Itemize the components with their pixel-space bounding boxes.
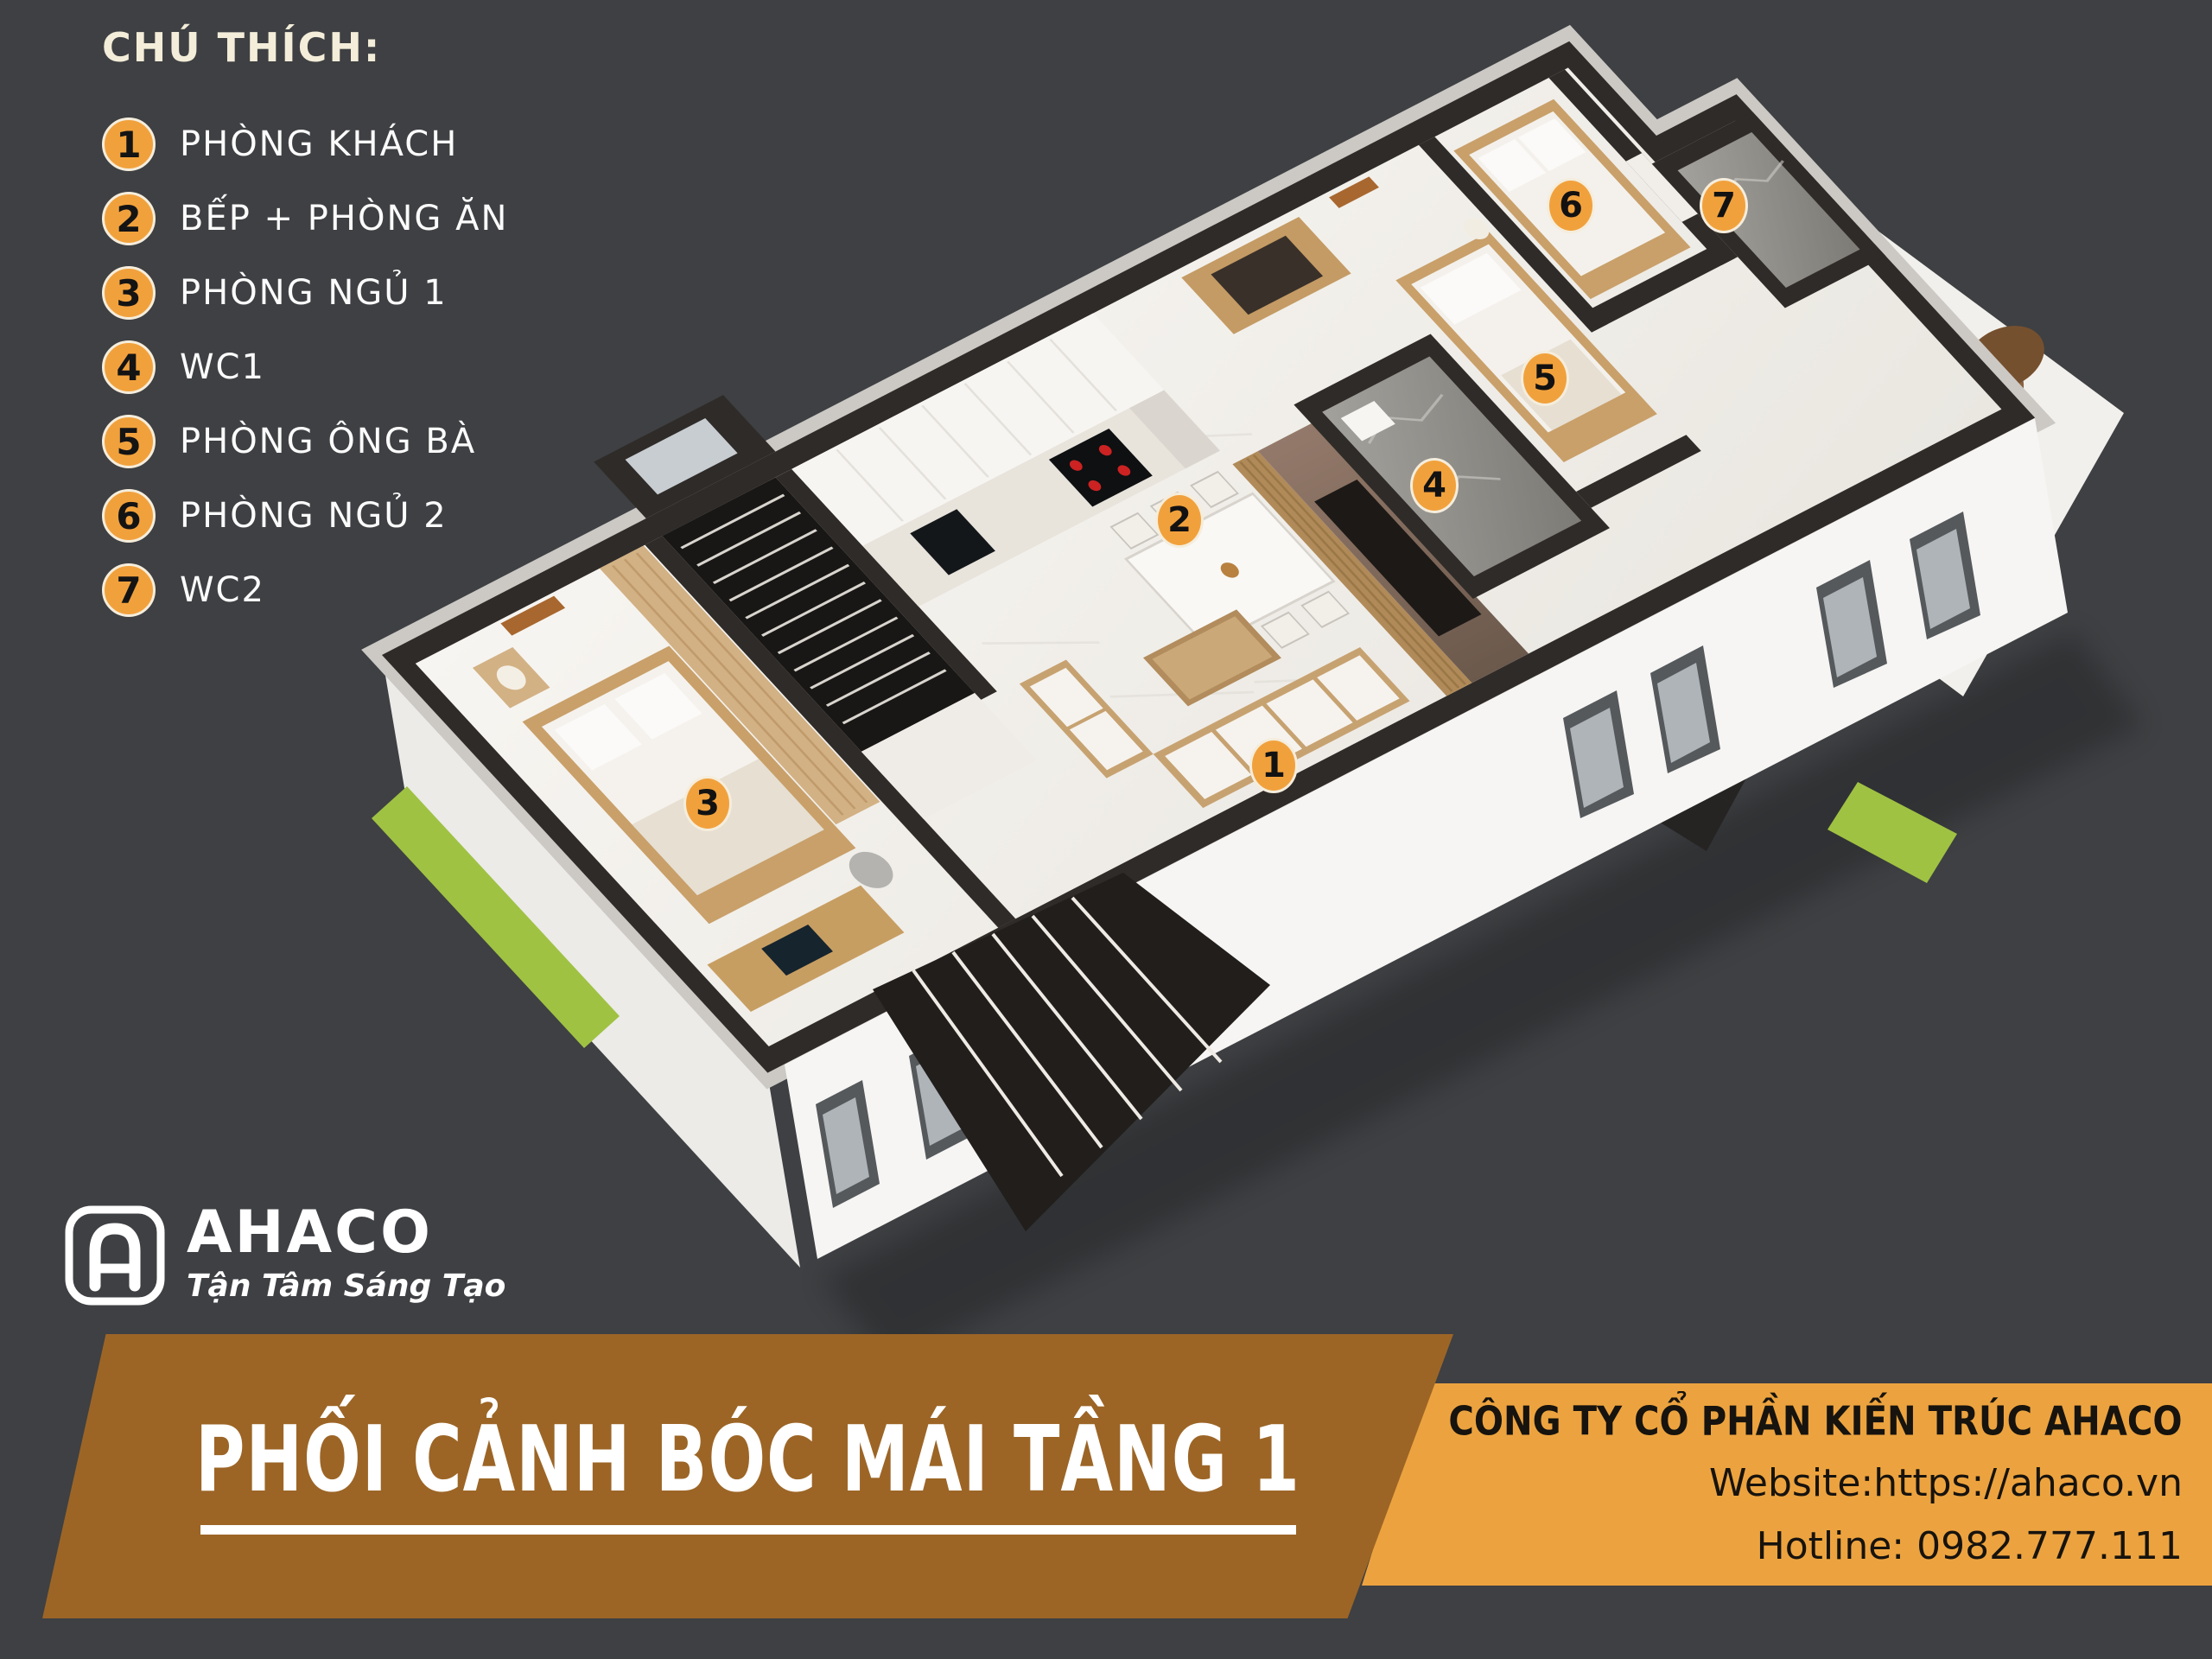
- legend-item-1: 1 PHÒNG KHÁCH: [102, 107, 508, 181]
- logo-brand-text: AHACO: [187, 1203, 505, 1263]
- logo-a-icon: [62, 1203, 168, 1308]
- legend-badge-1: 1: [102, 118, 156, 171]
- title-banner: PHỐI CẢNH BÓC MÁI TẦNG 1: [42, 1334, 1453, 1618]
- room-marker-living: 1: [1249, 738, 1298, 793]
- poster-canvas: CHÚ THÍCH: 1 PHÒNG KHÁCH 2 BẾP + PHÒNG Ă…: [0, 0, 2212, 1659]
- legend-badge-2: 2: [102, 192, 156, 245]
- legend-badge-6: 6: [102, 489, 156, 543]
- legend-title: CHÚ THÍCH:: [102, 24, 508, 71]
- legend-item-7: 7 WC2: [102, 553, 508, 627]
- room-marker-grandparents: 5: [1521, 351, 1569, 406]
- company-name: CÔNG TY CỔ PHẦN KIẾN TRÚC AHACO: [1449, 1398, 2183, 1445]
- legend: CHÚ THÍCH: 1 PHÒNG KHÁCH 2 BẾP + PHÒNG Ă…: [102, 24, 508, 627]
- legend-item-4: 4 WC1: [102, 330, 508, 404]
- legend-label-4: WC1: [180, 347, 265, 387]
- legend-label-6: PHÒNG NGỦ 2: [180, 496, 448, 536]
- legend-item-3: 3 PHÒNG NGỦ 1: [102, 256, 508, 330]
- legend-item-6: 6 PHÒNG NGỦ 2: [102, 479, 508, 553]
- room-marker-bedroom1: 3: [683, 776, 732, 831]
- title-underline: [200, 1525, 1296, 1535]
- legend-label-5: PHÒNG ÔNG BÀ: [180, 422, 476, 461]
- room-marker-wc1: 4: [1410, 458, 1459, 513]
- legend-label-3: PHÒNG NGỦ 1: [180, 273, 448, 313]
- company-hotline: Hotline: 0982.777.111: [1757, 1524, 2183, 1568]
- room-marker-wc2: 7: [1700, 178, 1748, 233]
- company-website: Website:https://ahaco.vn: [1709, 1461, 2183, 1505]
- page-title: PHỐI CẢNH BÓC MÁI TẦNG 1: [195, 1406, 1300, 1512]
- legend-label-7: WC2: [180, 570, 265, 610]
- brand-logo: AHACO Tận Tâm Sáng Tạo: [62, 1203, 505, 1308]
- logo-tagline: Tận Tâm Sáng Tạo: [187, 1268, 505, 1304]
- room-marker-bedroom2: 6: [1547, 178, 1595, 233]
- legend-badge-4: 4: [102, 340, 156, 394]
- legend-badge-5: 5: [102, 415, 156, 468]
- legend-label-1: PHÒNG KHÁCH: [180, 124, 458, 164]
- room-marker-kitchen: 2: [1155, 493, 1204, 548]
- legend-item-2: 2 BẾP + PHÒNG ĂN: [102, 181, 508, 256]
- company-info-panel: CÔNG TY CỔ PHẦN KIẾN TRÚC AHACO Website:…: [1362, 1383, 2212, 1586]
- legend-item-5: 5 PHÒNG ÔNG BÀ: [102, 404, 508, 479]
- legend-badge-3: 3: [102, 266, 156, 320]
- legend-badge-7: 7: [102, 563, 156, 617]
- legend-label-2: BẾP + PHÒNG ĂN: [180, 199, 508, 238]
